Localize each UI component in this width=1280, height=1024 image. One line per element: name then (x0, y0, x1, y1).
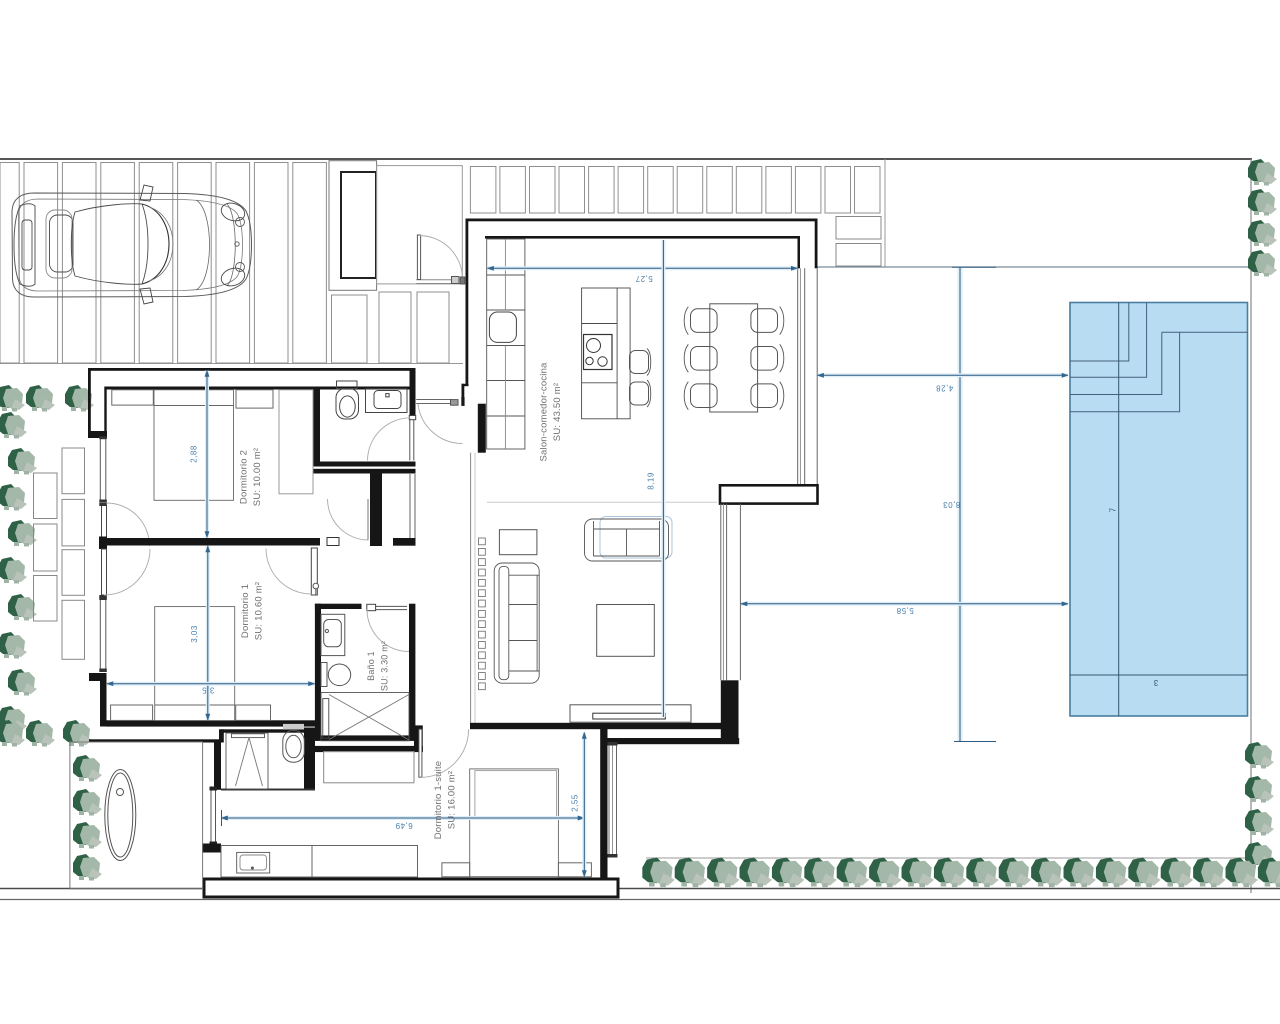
svg-text:4,28: 4,28 (936, 384, 954, 393)
svg-text:SU: 3.30 m²: SU: 3.30 m² (380, 641, 390, 691)
svg-text:SU: 10.00 m²: SU: 10.00 m² (252, 448, 263, 506)
svg-text:2,55: 2,55 (571, 794, 580, 812)
svg-text:3,03: 3,03 (190, 625, 199, 643)
svg-text:8,03: 8,03 (943, 500, 961, 509)
svg-text:Dormitorio 1: Dormitorio 1 (240, 584, 251, 638)
svg-text:3: 3 (1153, 678, 1158, 687)
svg-text:5,58: 5,58 (896, 606, 914, 615)
svg-text:5,27: 5,27 (635, 274, 653, 283)
svg-text:Dormitorio 2: Dormitorio 2 (239, 450, 250, 504)
svg-text:2,88: 2,88 (190, 445, 199, 463)
svg-text:Salon-comedor-cocina: Salon-comedor-cocina (539, 362, 550, 462)
svg-text:Baño 1: Baño 1 (366, 651, 376, 681)
svg-text:SU: 16.00 m²: SU: 16.00 m² (447, 771, 458, 829)
svg-text:6,49: 6,49 (395, 821, 413, 830)
svg-text:3,5: 3,5 (202, 686, 215, 695)
svg-text:SU: 43.50 m²: SU: 43.50 m² (552, 383, 563, 441)
svg-text:7: 7 (1109, 507, 1118, 512)
svg-text:8,19: 8,19 (647, 472, 656, 490)
svg-text:SU: 10.60 m²: SU: 10.60 m² (254, 582, 265, 640)
svg-text:Dormitorio 1-suite: Dormitorio 1-suite (433, 761, 444, 840)
